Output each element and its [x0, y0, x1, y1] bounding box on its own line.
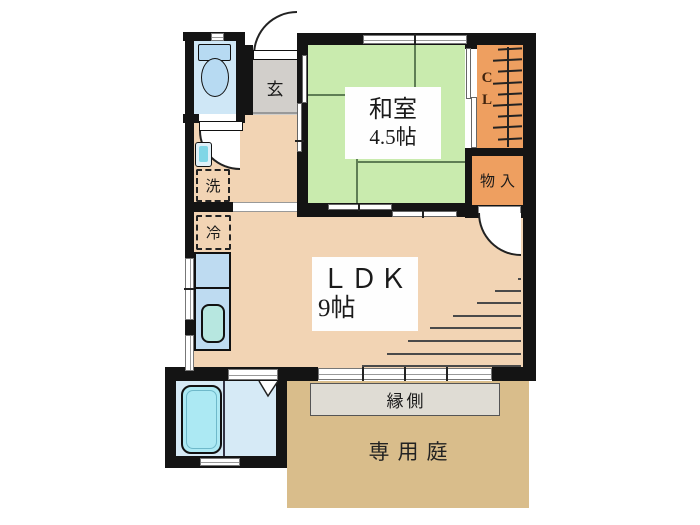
entrance-door-swing	[253, 11, 297, 55]
bathroom-doorway	[228, 369, 278, 380]
tatami-line	[356, 161, 465, 163]
window-tick	[404, 367, 406, 381]
wall-segment	[185, 32, 194, 373]
entrance-door	[253, 50, 298, 60]
floor-line	[453, 315, 521, 317]
room-storage: 物入	[472, 156, 523, 205]
door-tick	[358, 203, 360, 211]
window-tick	[414, 34, 416, 44]
wall-segment	[465, 148, 536, 156]
floor-line	[518, 278, 521, 280]
door-tick	[422, 210, 424, 218]
sliding-door-panel	[392, 211, 457, 217]
wall-segment	[492, 367, 536, 381]
wall-segment	[165, 367, 176, 468]
engawa-strip: 縁側	[310, 383, 500, 416]
floor-line	[495, 290, 521, 292]
garden-label: 専用庭	[287, 436, 529, 466]
washer-box: 洗	[196, 169, 230, 202]
kitchen-sink-icon	[201, 304, 225, 343]
floor-line	[408, 340, 521, 342]
window	[185, 335, 194, 371]
storage-label: 物入	[480, 170, 520, 191]
genkan-step-line	[253, 112, 297, 114]
wall-segment	[194, 202, 233, 212]
sliding-door-panel	[328, 204, 392, 210]
ldk-name: ＬＤＫ	[322, 264, 409, 295]
washitsu-name: 和室	[369, 97, 417, 125]
counter-divider	[196, 287, 229, 289]
sliding-door-panel	[471, 97, 477, 148]
floor-line	[387, 353, 521, 355]
ldk-label-box: ＬＤＫ 9帖	[312, 257, 418, 331]
window-tick	[362, 367, 364, 381]
engawa-label: 縁側	[387, 387, 427, 412]
toilet-bowl-icon	[201, 58, 229, 97]
sliding-door-panel	[297, 103, 302, 152]
door-tick	[295, 140, 304, 142]
bath-divider	[223, 381, 225, 456]
floor-line	[477, 302, 521, 304]
washitsu-size: 4.5帖	[369, 125, 416, 149]
room-genkan: 玄	[253, 60, 297, 115]
ldk-size: 9帖	[318, 295, 356, 324]
bathtub-icon	[181, 385, 222, 454]
doorway-opening	[233, 202, 297, 212]
toilet-door	[199, 121, 243, 131]
closet-label-l: L	[482, 90, 492, 112]
fridge-box: 冷	[196, 215, 231, 250]
closet-pole-line	[507, 47, 509, 147]
fridge-label: 冷	[206, 222, 221, 243]
genkan-label: 玄	[267, 75, 284, 100]
hand-sink-icon	[195, 142, 212, 167]
floor-plan: 物入 縁側 玄	[0, 0, 700, 525]
washer-label: 洗	[205, 175, 220, 196]
sliding-door-panel	[466, 48, 471, 99]
window-tick	[446, 367, 448, 381]
kitchen-counter	[194, 252, 231, 351]
window	[200, 458, 240, 466]
sliding-door-panel	[302, 55, 307, 103]
bathroom-folding-door-icon	[258, 381, 279, 398]
window	[211, 33, 224, 41]
closet-label: C L	[478, 68, 496, 112]
floor-line	[430, 327, 521, 329]
wall-segment	[243, 45, 253, 115]
closet-label-c: C	[482, 68, 493, 90]
washitsu-label-box: 和室 4.5帖	[345, 87, 441, 159]
